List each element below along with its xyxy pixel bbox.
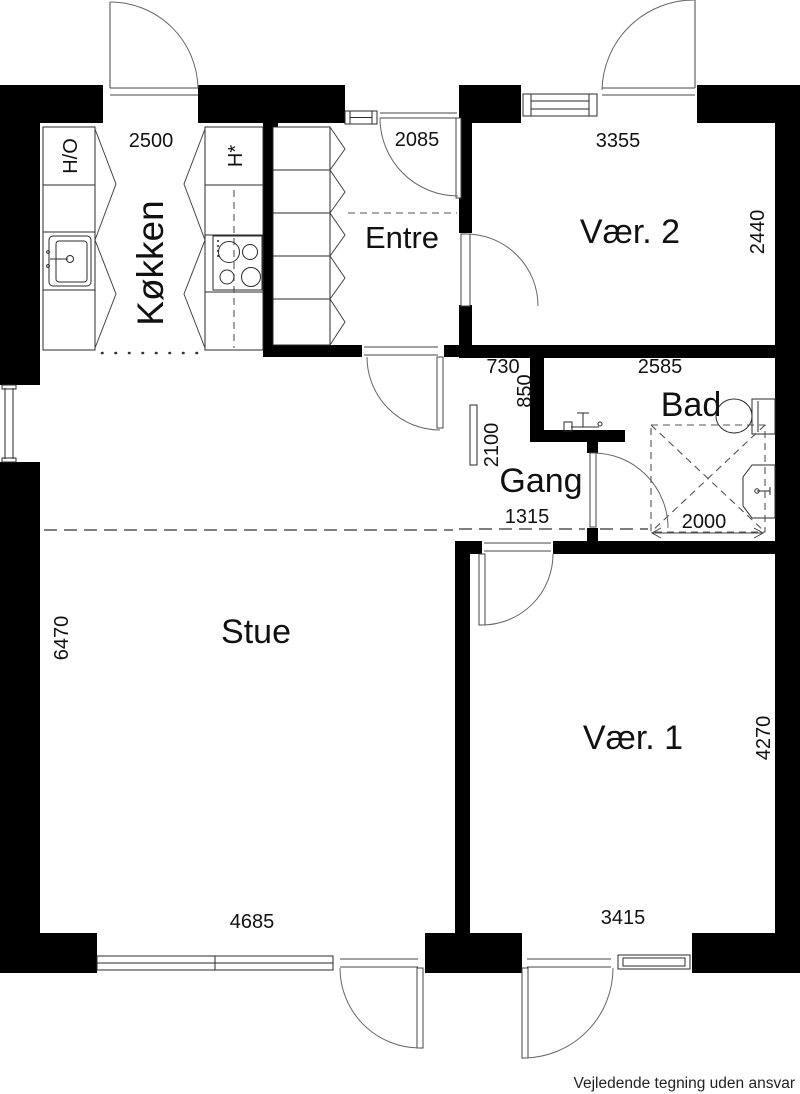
door-hall-to-bath [590, 453, 668, 528]
disclaimer-text: Vejledende tegning uden ansvar [574, 1075, 796, 1092]
radiator [470, 405, 477, 465]
dim-bath-width: 2585 [638, 356, 683, 378]
dim-hall-width: 1315 [505, 506, 550, 528]
room-label-bath: Bad [661, 386, 722, 424]
dim-room1-depth: 4270 [753, 716, 775, 761]
faucet-icon [564, 413, 602, 431]
door-entre-to-room2 [461, 234, 538, 306]
window-room1-bottom [618, 955, 690, 969]
dim-room2-depth: 2440 [747, 210, 769, 255]
room-label-living: Stue [221, 613, 291, 651]
dim-hall-length: 2100 [481, 423, 503, 468]
door-entre-front [380, 113, 461, 198]
appliance-label-h-star: H* [225, 145, 247, 167]
window-room2-top [523, 94, 597, 116]
bathroom-sink [743, 465, 775, 518]
labels: Køkken Entre Vær. 2 Bad Gang Stue Vær. 1… [51, 129, 795, 1092]
room-label-kitchen: Køkken [130, 200, 171, 325]
window-entre-top [345, 111, 377, 124]
kitchen-counter-right [184, 127, 263, 350]
dim-bath-wall-stub: 850 [514, 374, 536, 407]
dim-bath-depth: 2000 [682, 511, 727, 533]
door-living-exterior [340, 959, 423, 1048]
dim-room2-width: 3355 [596, 130, 641, 152]
dim-kitchen-width: 2500 [129, 130, 174, 152]
dim-room1-width: 3415 [601, 907, 646, 929]
door-entre-to-living [364, 347, 443, 430]
guide-lines [44, 529, 648, 530]
door-room1-exterior [522, 959, 613, 1058]
door-kitchen-exterior [110, 2, 198, 95]
toilet [716, 399, 775, 434]
room-label-hall: Gang [499, 462, 582, 500]
dim-entre-width: 2085 [395, 129, 440, 151]
window-living-left [2, 385, 16, 462]
wardrobe [273, 127, 345, 345]
floor-plan: Køkken Entre Vær. 2 Bad Gang Stue Vær. 1… [0, 0, 800, 1094]
dim-living-depth: 6470 [51, 616, 73, 661]
door-hall-to-room1 [479, 543, 553, 625]
door-room2-exterior [602, 0, 695, 95]
window-living-bottom [97, 956, 333, 970]
floor-plan-svg: Køkken Entre Vær. 2 Bad Gang Stue Vær. 1… [0, 0, 800, 1094]
dim-living-width: 4685 [230, 911, 275, 933]
appliance-label-ho: H/O [60, 138, 82, 174]
room-label-room1: Vær. 1 [583, 719, 683, 757]
room-label-entre: Entre [365, 220, 439, 255]
room-label-room2: Vær. 2 [580, 213, 680, 251]
